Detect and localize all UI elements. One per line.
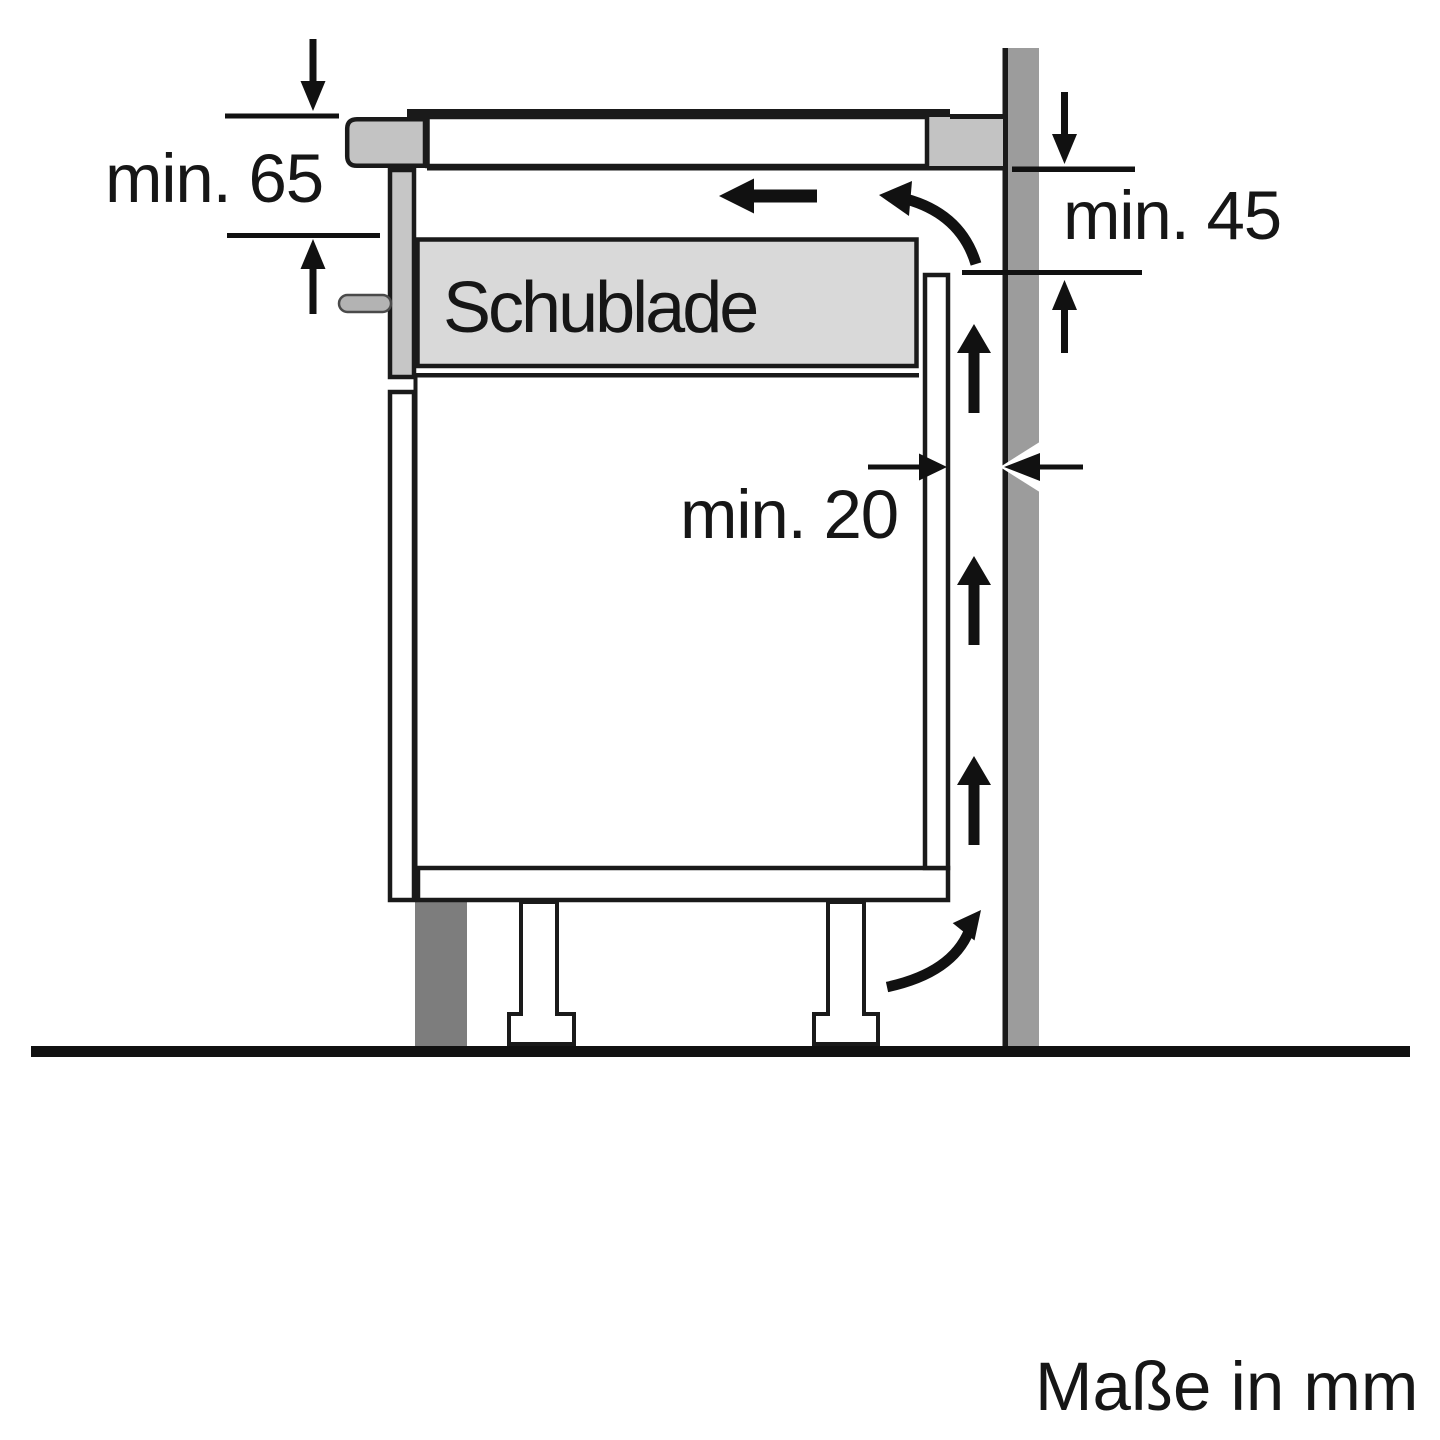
svg-text:min. 45: min. 45 bbox=[1063, 177, 1281, 254]
svg-text:Maße in mm: Maße in mm bbox=[1035, 1348, 1418, 1425]
svg-text:Schublade: Schublade bbox=[443, 268, 756, 348]
svg-text:min. 20: min. 20 bbox=[680, 476, 898, 553]
svg-text:min. 65: min. 65 bbox=[105, 140, 323, 217]
